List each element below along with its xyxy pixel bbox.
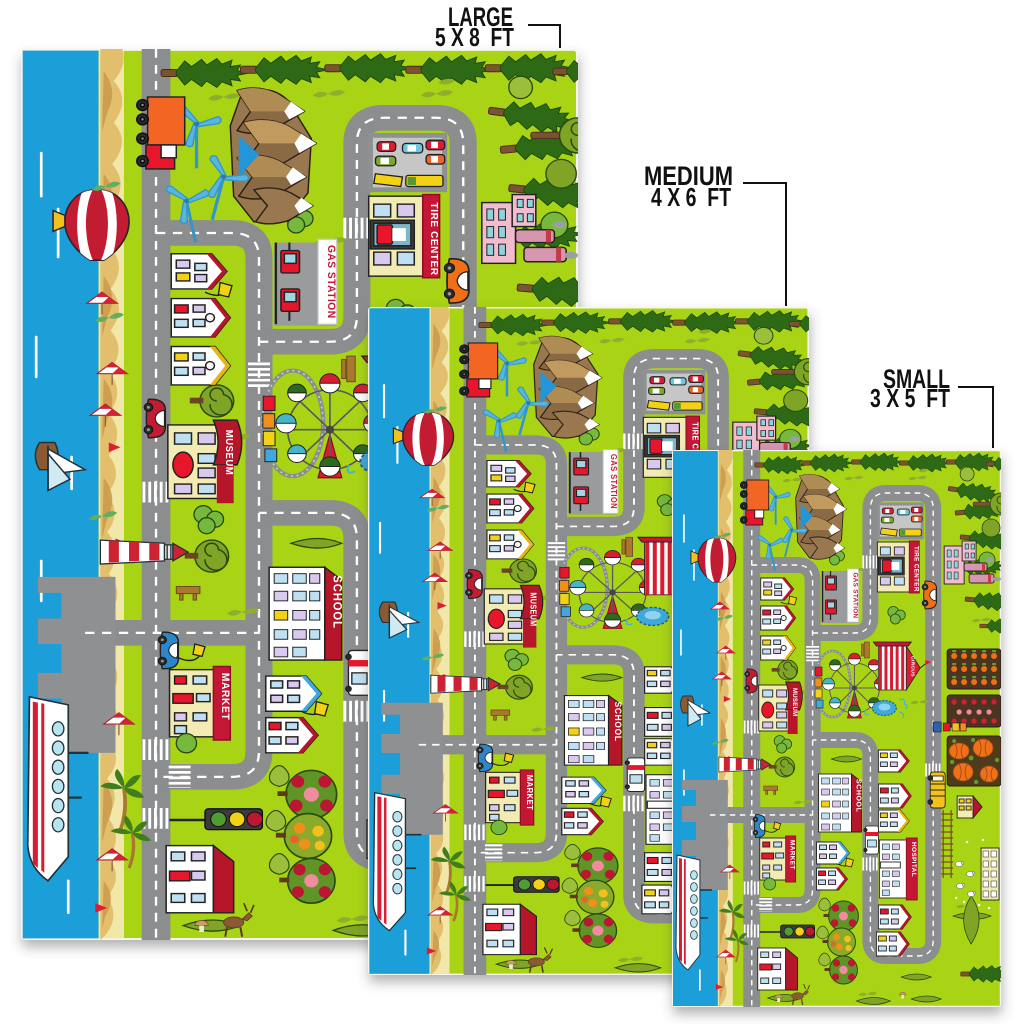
- svg-text:3 X 5 FT: 3 X 5 FT: [870, 383, 950, 413]
- svg-text:4 X 6 FT: 4 X 6 FT: [651, 182, 731, 212]
- svg-text:5 X 8 FT: 5 X 8 FT: [435, 22, 514, 52]
